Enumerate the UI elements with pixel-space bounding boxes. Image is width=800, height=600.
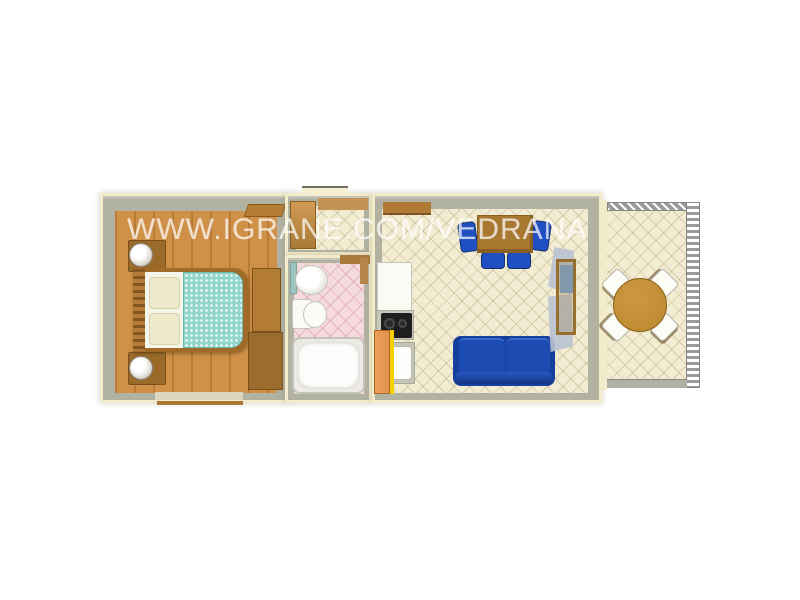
terrace-railing-bottom [607, 379, 687, 388]
terrace-round-table [613, 278, 667, 332]
terrace-window-glass [560, 265, 573, 293]
kitchen-sink-basin [391, 346, 412, 380]
lamp-icon [129, 356, 153, 380]
terrace-railing-right [686, 202, 700, 388]
floor-plan: WWW.IGRANE.COM/VEDRANA [0, 0, 800, 600]
refrigerator [377, 262, 412, 312]
bed-duvet [183, 272, 243, 348]
wardrobe-upper [252, 268, 281, 332]
watermark-text: WWW.IGRANE.COM/VEDRANA [127, 215, 587, 245]
kitchen-open-door [374, 330, 390, 394]
dining-chair-bottom-1 [481, 252, 505, 269]
wardrobe-lower [248, 332, 283, 390]
dining-chair-bottom-2 [507, 252, 531, 269]
entrance-door [302, 186, 348, 195]
kitchen-door-edge [390, 330, 394, 394]
cooktop-burner-icon [398, 319, 407, 328]
lamp-icon [129, 243, 153, 267]
sofa-cushion [459, 338, 505, 372]
sofa-cushion [506, 338, 550, 372]
bedroom-window-sill [157, 401, 243, 405]
sofa-backrest [456, 372, 552, 384]
bathtub-basin [297, 342, 360, 389]
bed-pillow [149, 313, 180, 345]
cooktop-burner-icon [384, 318, 395, 329]
bathroom-door-jamb [360, 258, 368, 284]
bedroom-window-gap [155, 392, 243, 400]
washbasin [295, 265, 328, 295]
hall-wall-brown [318, 198, 368, 210]
bed-headboard [133, 269, 145, 351]
toilet-bowl [303, 301, 327, 328]
bed-pillow [149, 277, 180, 309]
